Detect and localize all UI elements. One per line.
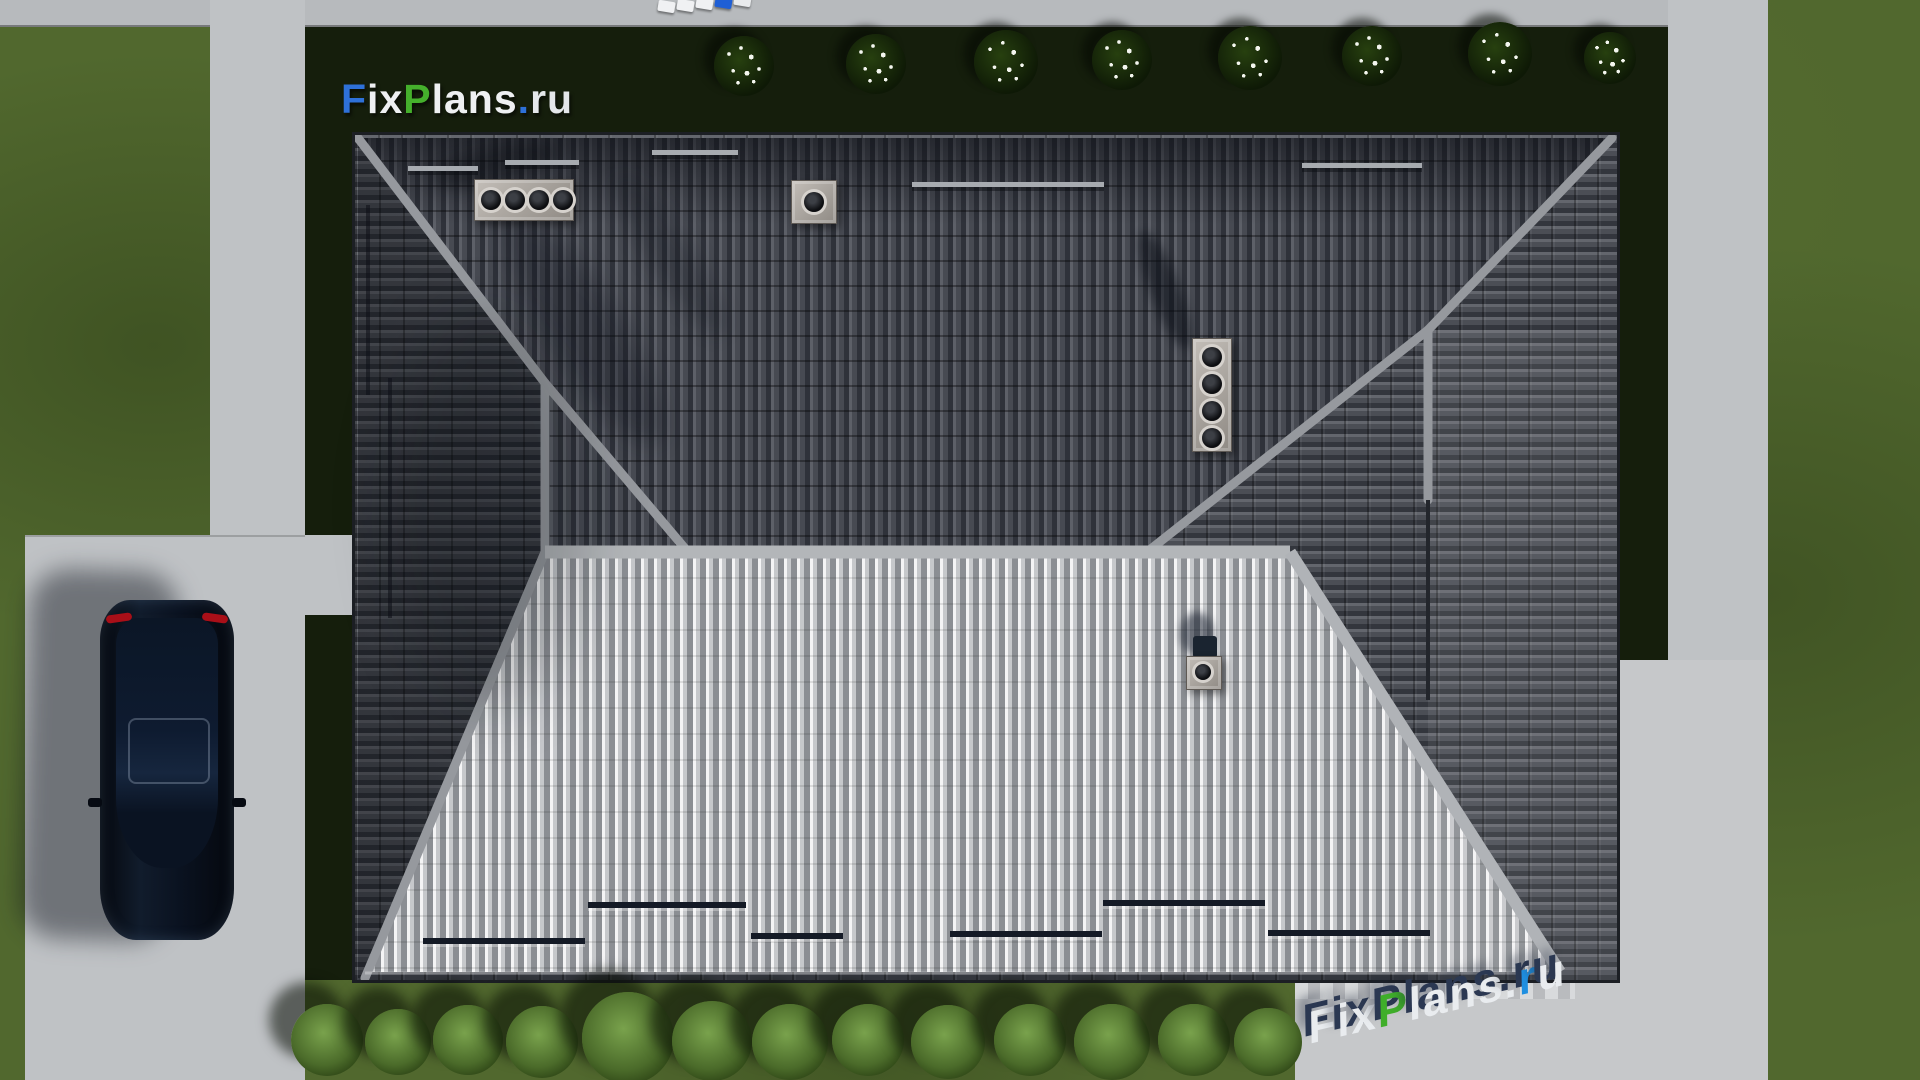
west-slope-shade (390, 310, 590, 710)
roof-guard-line (388, 378, 392, 618)
flowering-shrub (1218, 26, 1282, 90)
snow-guard-bar (505, 160, 579, 165)
parked-car (100, 600, 234, 940)
vent-single-flue (791, 180, 837, 224)
vent-stack-four-flue (1192, 338, 1232, 452)
snow-guard-bar (652, 150, 738, 155)
logo-letter: F (341, 76, 367, 122)
flowering-shrub (1468, 22, 1532, 86)
flowering-shrub (846, 34, 906, 94)
roof-outlet (1186, 656, 1222, 690)
car-sunroof (128, 718, 210, 784)
roof-outlet-cap (1193, 636, 1217, 658)
snow-guard-bar (1302, 163, 1422, 168)
hedge-bush (832, 1004, 904, 1076)
flue-icon (804, 192, 824, 212)
snow-guard-bar (912, 182, 1104, 187)
hedge-bush (582, 992, 674, 1080)
flowering-shrub (1092, 30, 1152, 90)
snow-guard-bar (1268, 930, 1430, 936)
logo-letter: F (1308, 995, 1338, 1054)
flowering-shrub (1342, 26, 1402, 86)
hedge-bush (506, 1006, 578, 1078)
entrance-walkway-stub (305, 535, 357, 615)
hedge-bush (994, 1004, 1066, 1076)
fixplans-logo: FixPlans.ru (341, 76, 573, 123)
flue-icon (1202, 428, 1222, 448)
logo-letter: ix (1337, 986, 1378, 1047)
flowering-shrub (974, 30, 1038, 94)
logo-letter: . (518, 76, 530, 122)
logo-letter: P (403, 76, 431, 122)
snow-guard-bar (950, 931, 1102, 937)
flue-icon (553, 190, 573, 210)
logo-letter: P (1377, 979, 1409, 1038)
flue-icon (1202, 401, 1222, 421)
flowering-shrub (1584, 32, 1636, 84)
logo-letter: ru (530, 76, 573, 122)
sidewalk-left (210, 0, 305, 540)
hedge-bush (672, 1001, 752, 1080)
snow-guard-bar (588, 902, 746, 908)
flue-icon (1195, 664, 1211, 680)
snow-guard-bar (751, 933, 843, 939)
aerial-render-canvas: FixPlans.ru FixPlans.ru (0, 0, 1920, 1080)
snow-guard-bar (408, 166, 478, 171)
flue-icon (481, 190, 501, 210)
hedge-bush (1074, 1004, 1150, 1080)
logo-letter: r (1518, 949, 1538, 1006)
logo-letter: ix (367, 76, 403, 122)
garden-path-right (1668, 0, 1768, 672)
side-mirror-icon (232, 798, 246, 807)
logo-letter: . (1504, 953, 1519, 1008)
hedge-bush (291, 1004, 363, 1076)
hedge-bush (1234, 1008, 1302, 1076)
flue-icon (1202, 374, 1222, 394)
flue-icon (1202, 347, 1222, 367)
flowering-shrub (714, 36, 774, 96)
snow-guard-bar (1103, 900, 1265, 906)
hedge-bush (365, 1009, 431, 1075)
flue-icon (529, 190, 549, 210)
logo-letter: lans (432, 76, 518, 122)
roof-guard-line (366, 205, 370, 395)
snow-guard-bar (423, 938, 585, 944)
hedge-bush (752, 1004, 828, 1080)
hedge-bush (1158, 1004, 1230, 1076)
logo-letter: u (1537, 942, 1567, 1001)
hedge-bush (911, 1005, 985, 1079)
chimney-four-flue (474, 179, 574, 221)
flue-icon (505, 190, 525, 210)
side-mirror-icon (88, 798, 102, 807)
lawn-shadow-right (1617, 135, 1668, 663)
hedge-bush (433, 1005, 503, 1075)
watermark-block (676, 0, 695, 12)
